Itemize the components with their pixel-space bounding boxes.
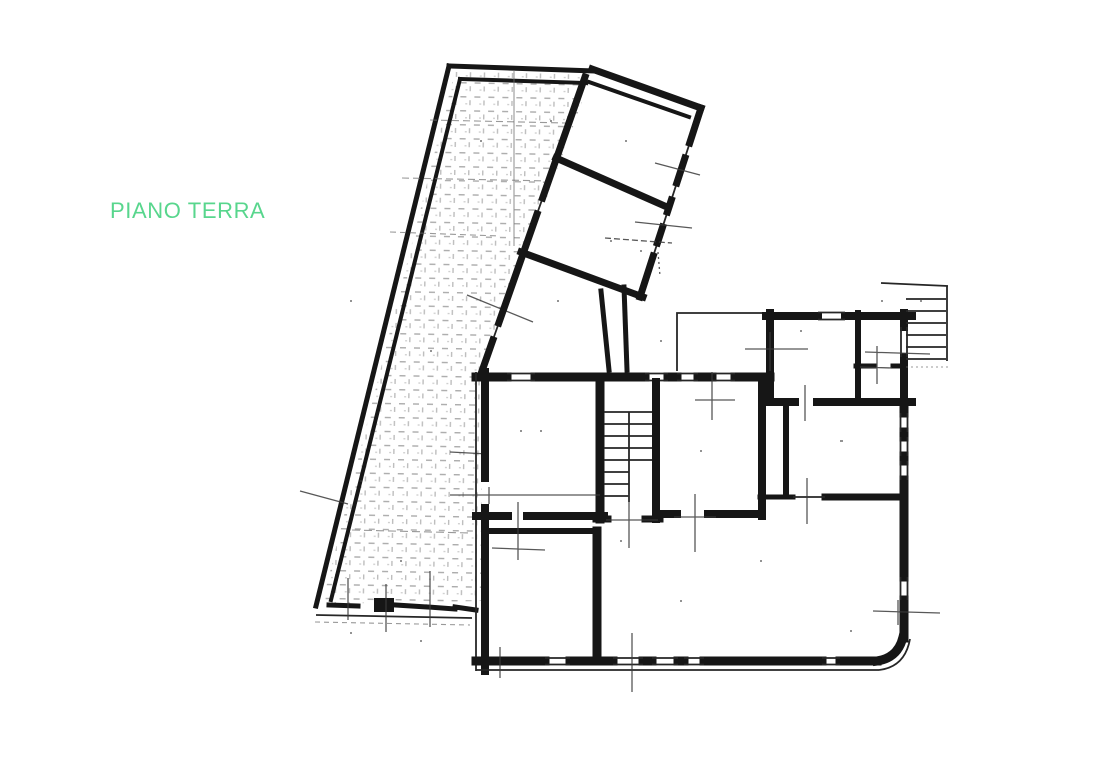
floor-plan-drawing bbox=[0, 0, 1102, 758]
terrace-porch bbox=[677, 313, 768, 371]
courtyard-pillar bbox=[374, 598, 394, 612]
room-center bbox=[656, 382, 762, 516]
external-staircase bbox=[881, 283, 948, 367]
courtyard-terrace bbox=[300, 66, 596, 632]
interior-walls bbox=[476, 382, 898, 661]
main-block-outline bbox=[476, 372, 910, 671]
internal-staircase bbox=[596, 382, 660, 519]
room-right bbox=[760, 402, 898, 497]
scanned-floor-plan: PIANO TERRA bbox=[0, 0, 1102, 758]
wing-room-divider bbox=[556, 158, 667, 207]
duct-passage bbox=[601, 287, 627, 370]
upper-right-rooms bbox=[745, 313, 930, 404]
